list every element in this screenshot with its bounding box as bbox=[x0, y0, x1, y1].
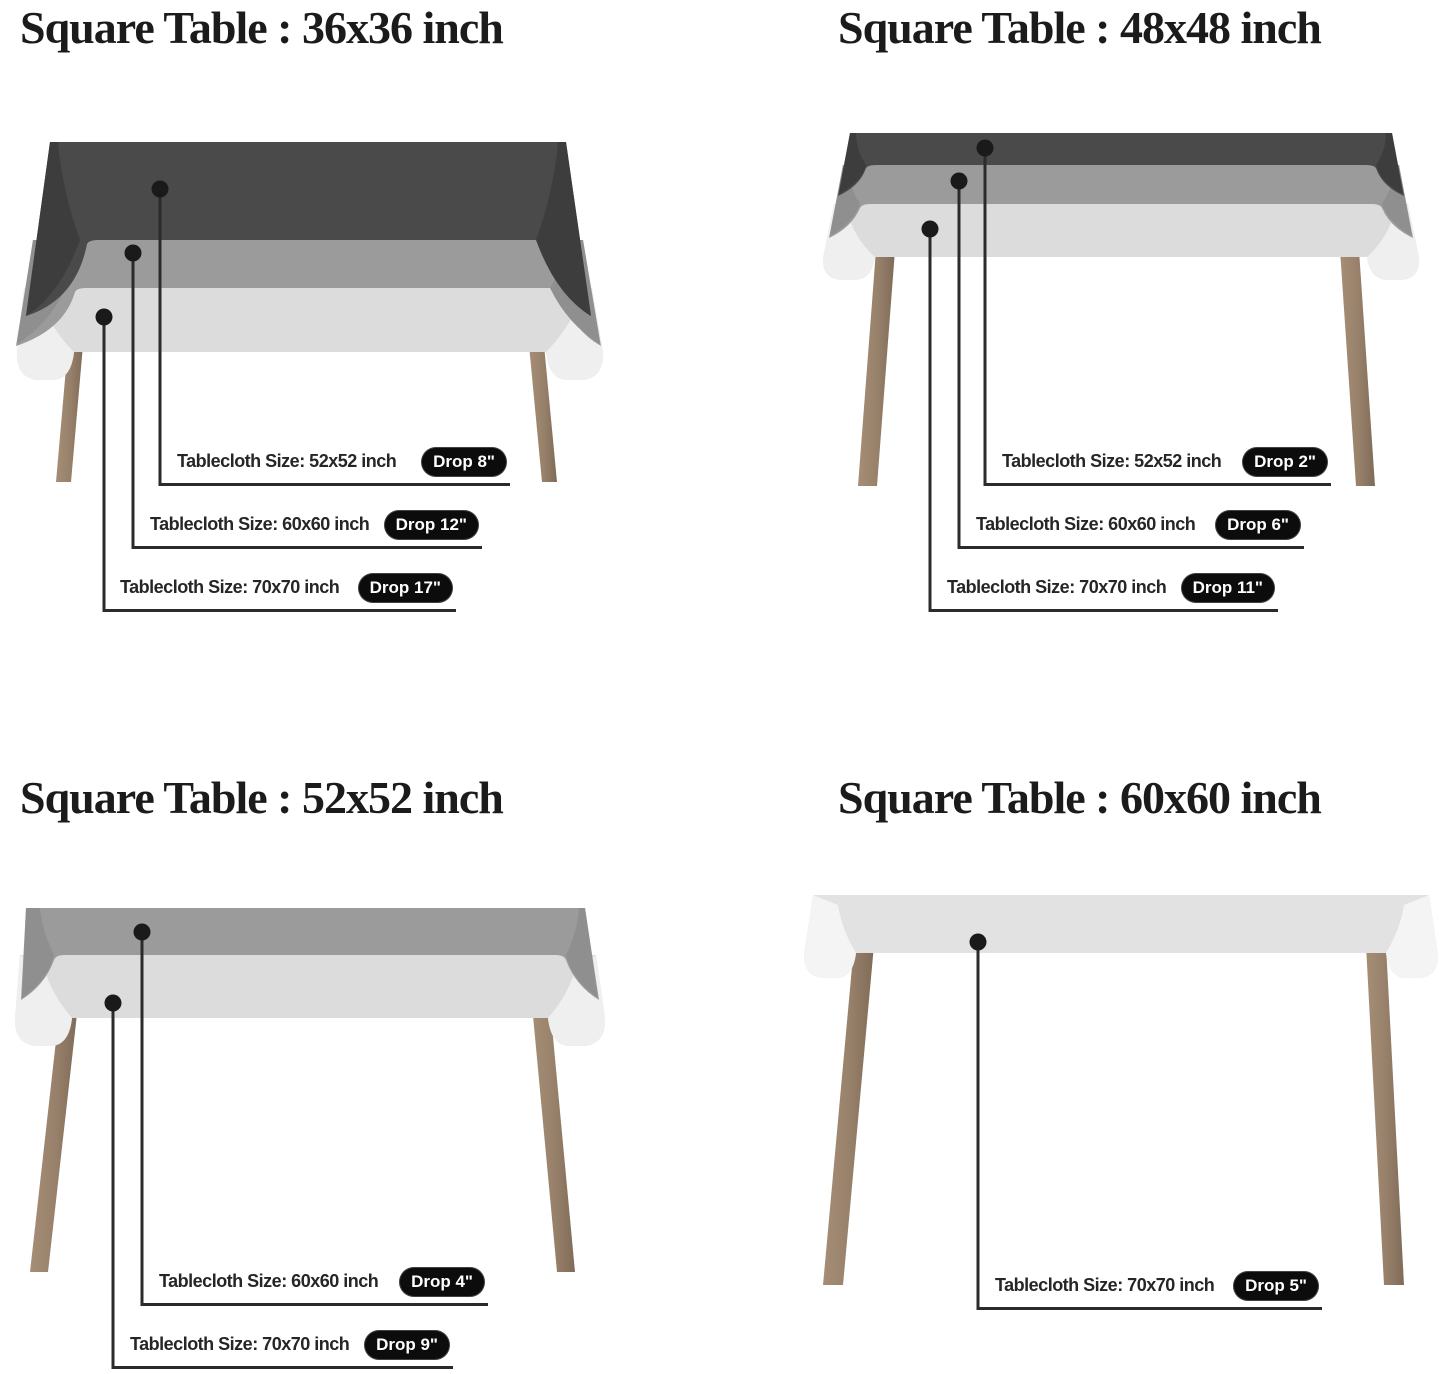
tablecloth-size-label: Tablecloth Size: 70x70 inch Drop 5" bbox=[978, 1270, 1322, 1310]
panel-48x48: Square Table : 48x48 inch Tablecloth Siz… bbox=[723, 0, 1445, 687]
tablecloth-size-text: Tablecloth Size: 70x70 inch bbox=[995, 1275, 1214, 1296]
tablecloth-size-label: Tablecloth Size: 60x60 inch Drop 6" bbox=[959, 509, 1304, 549]
tablecloth-size-label: Tablecloth Size: 70x70 inch Drop 17" bbox=[103, 572, 456, 612]
panel-title-60x60: Square Table : 60x60 inch bbox=[838, 770, 1321, 826]
tablecloth-size-text: Tablecloth Size: 60x60 inch bbox=[150, 514, 369, 535]
tablecloth-size-label: Tablecloth Size: 60x60 inch Drop 4" bbox=[142, 1266, 488, 1306]
panel-title-52x52: Square Table : 52x52 inch bbox=[20, 770, 503, 826]
tablecloth-size-label: Tablecloth Size: 52x52 inch Drop 8" bbox=[160, 446, 510, 486]
drop-badge: Drop 8" bbox=[421, 447, 507, 477]
drop-badge: Drop 12" bbox=[384, 510, 479, 540]
drop-badge: Drop 4" bbox=[399, 1267, 485, 1297]
panel-title-48x48: Square Table : 48x48 inch bbox=[838, 0, 1321, 56]
drop-badge: Drop 9" bbox=[364, 1330, 450, 1360]
panel-36x36: Square Table : 36x36 inch Tablecloth Siz… bbox=[0, 0, 722, 687]
tablecloth-size-label: Tablecloth Size: 52x52 inch Drop 2" bbox=[985, 446, 1331, 486]
tablecloth-size-text: Tablecloth Size: 52x52 inch bbox=[1002, 451, 1221, 472]
tablecloth-size-text: Tablecloth Size: 70x70 inch bbox=[120, 577, 339, 598]
drop-badge: Drop 5" bbox=[1233, 1271, 1319, 1301]
tablecloth-size-text: Tablecloth Size: 70x70 inch bbox=[947, 577, 1166, 598]
drop-badge: Drop 11" bbox=[1181, 573, 1275, 603]
drop-badge: Drop 2" bbox=[1242, 447, 1328, 477]
tablecloth-size-label: Tablecloth Size: 70x70 inch Drop 11" bbox=[930, 572, 1278, 612]
tablecloth-size-label: Tablecloth Size: 70x70 inch Drop 9" bbox=[113, 1329, 453, 1369]
panel-52x52: Square Table : 52x52 inch Tablecloth Siz… bbox=[0, 687, 722, 1374]
tablecloth-size-text: Tablecloth Size: 60x60 inch bbox=[976, 514, 1195, 535]
drop-badge: Drop 17" bbox=[358, 573, 453, 603]
panel-60x60: Square Table : 60x60 inch Tablecloth Siz… bbox=[723, 687, 1445, 1374]
drop-badge: Drop 6" bbox=[1215, 510, 1301, 540]
panel-title-36x36: Square Table : 36x36 inch bbox=[20, 0, 503, 56]
tablecloth-size-text: Tablecloth Size: 60x60 inch bbox=[159, 1271, 378, 1292]
tablecloth-size-label: Tablecloth Size: 60x60 inch Drop 12" bbox=[133, 509, 482, 549]
tablecloth-size-text: Tablecloth Size: 70x70 inch bbox=[130, 1334, 349, 1355]
tablecloth-size-infographic: Square Table : 36x36 inch Tablecloth Siz… bbox=[0, 0, 1445, 1374]
tablecloth-size-text: Tablecloth Size: 52x52 inch bbox=[177, 451, 396, 472]
